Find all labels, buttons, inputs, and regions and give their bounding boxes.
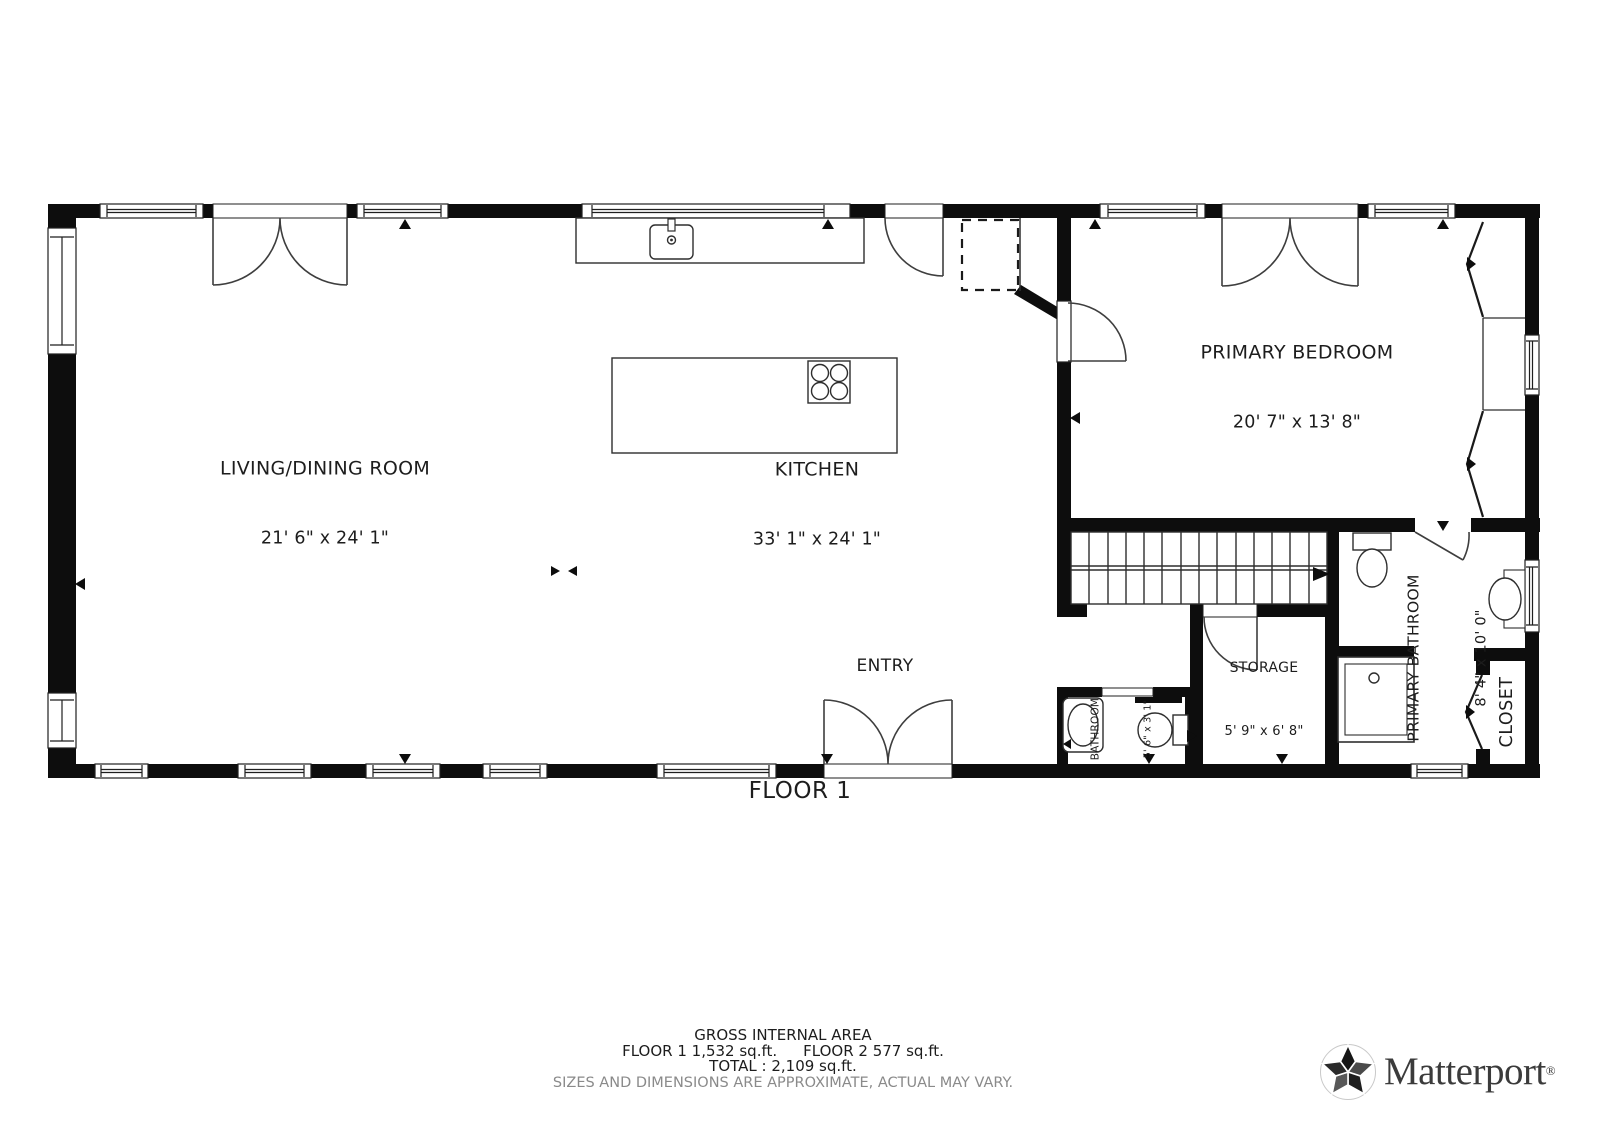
marker-arrow-icon: [568, 566, 577, 576]
room-name: LIVING/DINING ROOM: [220, 455, 430, 482]
marker-arrow-icon: [821, 754, 833, 764]
door-bathroom-sliding: [1102, 688, 1153, 696]
stairs: [1071, 532, 1330, 604]
matterport-pinwheel-icon: [1318, 1040, 1378, 1102]
floor-title: FLOOR 1: [749, 775, 852, 807]
french-door-bedroom: [1222, 204, 1358, 286]
room-name: KITCHEN: [753, 456, 881, 483]
window-icon: [100, 204, 203, 218]
bifold-door-bedroom-closet-lower: [1467, 411, 1483, 517]
window-icon: [48, 228, 76, 354]
room-dims: 8' 4" x 10' 0": [1472, 574, 1493, 741]
room-label-primary-bedroom: PRIMARY BEDROOM 20' 7" x 13' 8": [1201, 294, 1394, 479]
floorplan-page: LIVING/DINING ROOM 21' 6" x 24' 1" KITCH…: [0, 0, 1600, 1130]
window-icon: [357, 204, 448, 218]
room-label-entry: ENTRY: [857, 655, 914, 679]
entry-french-doors: [824, 700, 952, 778]
marker-arrow-icon: [551, 566, 560, 576]
door-primary-bathroom: [1415, 532, 1469, 560]
window-icon: [1525, 335, 1539, 395]
marker-arrow-icon: [75, 578, 85, 590]
door-kitchen-side: [885, 204, 943, 276]
marker-arrow-icon: [1437, 521, 1449, 531]
room-label-storage: STORAGE 5' 9" x 6' 8": [1224, 614, 1303, 786]
door-bedroom: [1057, 301, 1126, 362]
marker-arrow-icon: [399, 219, 411, 229]
marker-arrow-icon: [1437, 219, 1449, 229]
window-icon: [48, 693, 76, 748]
room-dims: 20' 7" x 13' 8": [1201, 410, 1394, 435]
bedroom-closet-partitions: [1483, 318, 1525, 410]
french-door-living: [213, 204, 347, 285]
room-label-bathroom: BATHROOM 5' 6" x 3' 1": [1050, 698, 1195, 760]
area-total: TOTAL : 2,109 sq.ft.: [553, 1059, 1013, 1075]
window-icon: [483, 764, 547, 778]
window-icon: [366, 764, 440, 778]
window-icon: [582, 204, 850, 218]
sink-icon: [650, 219, 693, 259]
room-name: BATHROOM: [1090, 698, 1103, 760]
bifold-door-bedroom-closet-upper: [1467, 222, 1483, 317]
marker-arrow-icon: [399, 754, 411, 764]
window-icon: [95, 764, 148, 778]
room-name: PRIMARY BATHROOM: [1403, 574, 1425, 741]
registered-mark: ®: [1546, 1063, 1556, 1079]
room-dims: 33' 1" x 24' 1": [753, 527, 881, 552]
room-name: PRIMARY BEDROOM: [1201, 339, 1394, 366]
stove-icon: [808, 361, 850, 403]
marker-arrow-icon: [1089, 219, 1101, 229]
window-icon: [1411, 764, 1468, 778]
kitchen-counter: [576, 218, 864, 263]
appliance-dashed-box: [962, 220, 1018, 290]
window-icon: [1368, 204, 1455, 218]
marker-arrow-icon: [1070, 412, 1080, 424]
window-icon: [1100, 204, 1205, 218]
room-label-closet: CLOSET: [1495, 677, 1520, 748]
matterport-logo: Matterport®: [1318, 1040, 1556, 1102]
room-dims: 5' 9" x 6' 8": [1224, 723, 1303, 741]
area-summary: GROSS INTERNAL AREA FLOOR 1 1,532 sq.ft.…: [553, 1028, 1013, 1091]
room-label-living-dining: LIVING/DINING ROOM 21' 6" x 24' 1": [220, 410, 430, 595]
window-icon: [238, 764, 311, 778]
room-label-kitchen: KITCHEN 33' 1" x 24' 1": [753, 411, 881, 596]
room-dims: 5' 6" x 3' 1": [1143, 698, 1155, 760]
matterport-wordmark: Matterport: [1384, 1049, 1546, 1094]
area-disclaimer: SIZES AND DIMENSIONS ARE APPROXIMATE, AC…: [553, 1076, 1013, 1092]
room-dims: 21' 6" x 24' 1": [220, 526, 430, 551]
room-name: STORAGE: [1224, 659, 1303, 679]
